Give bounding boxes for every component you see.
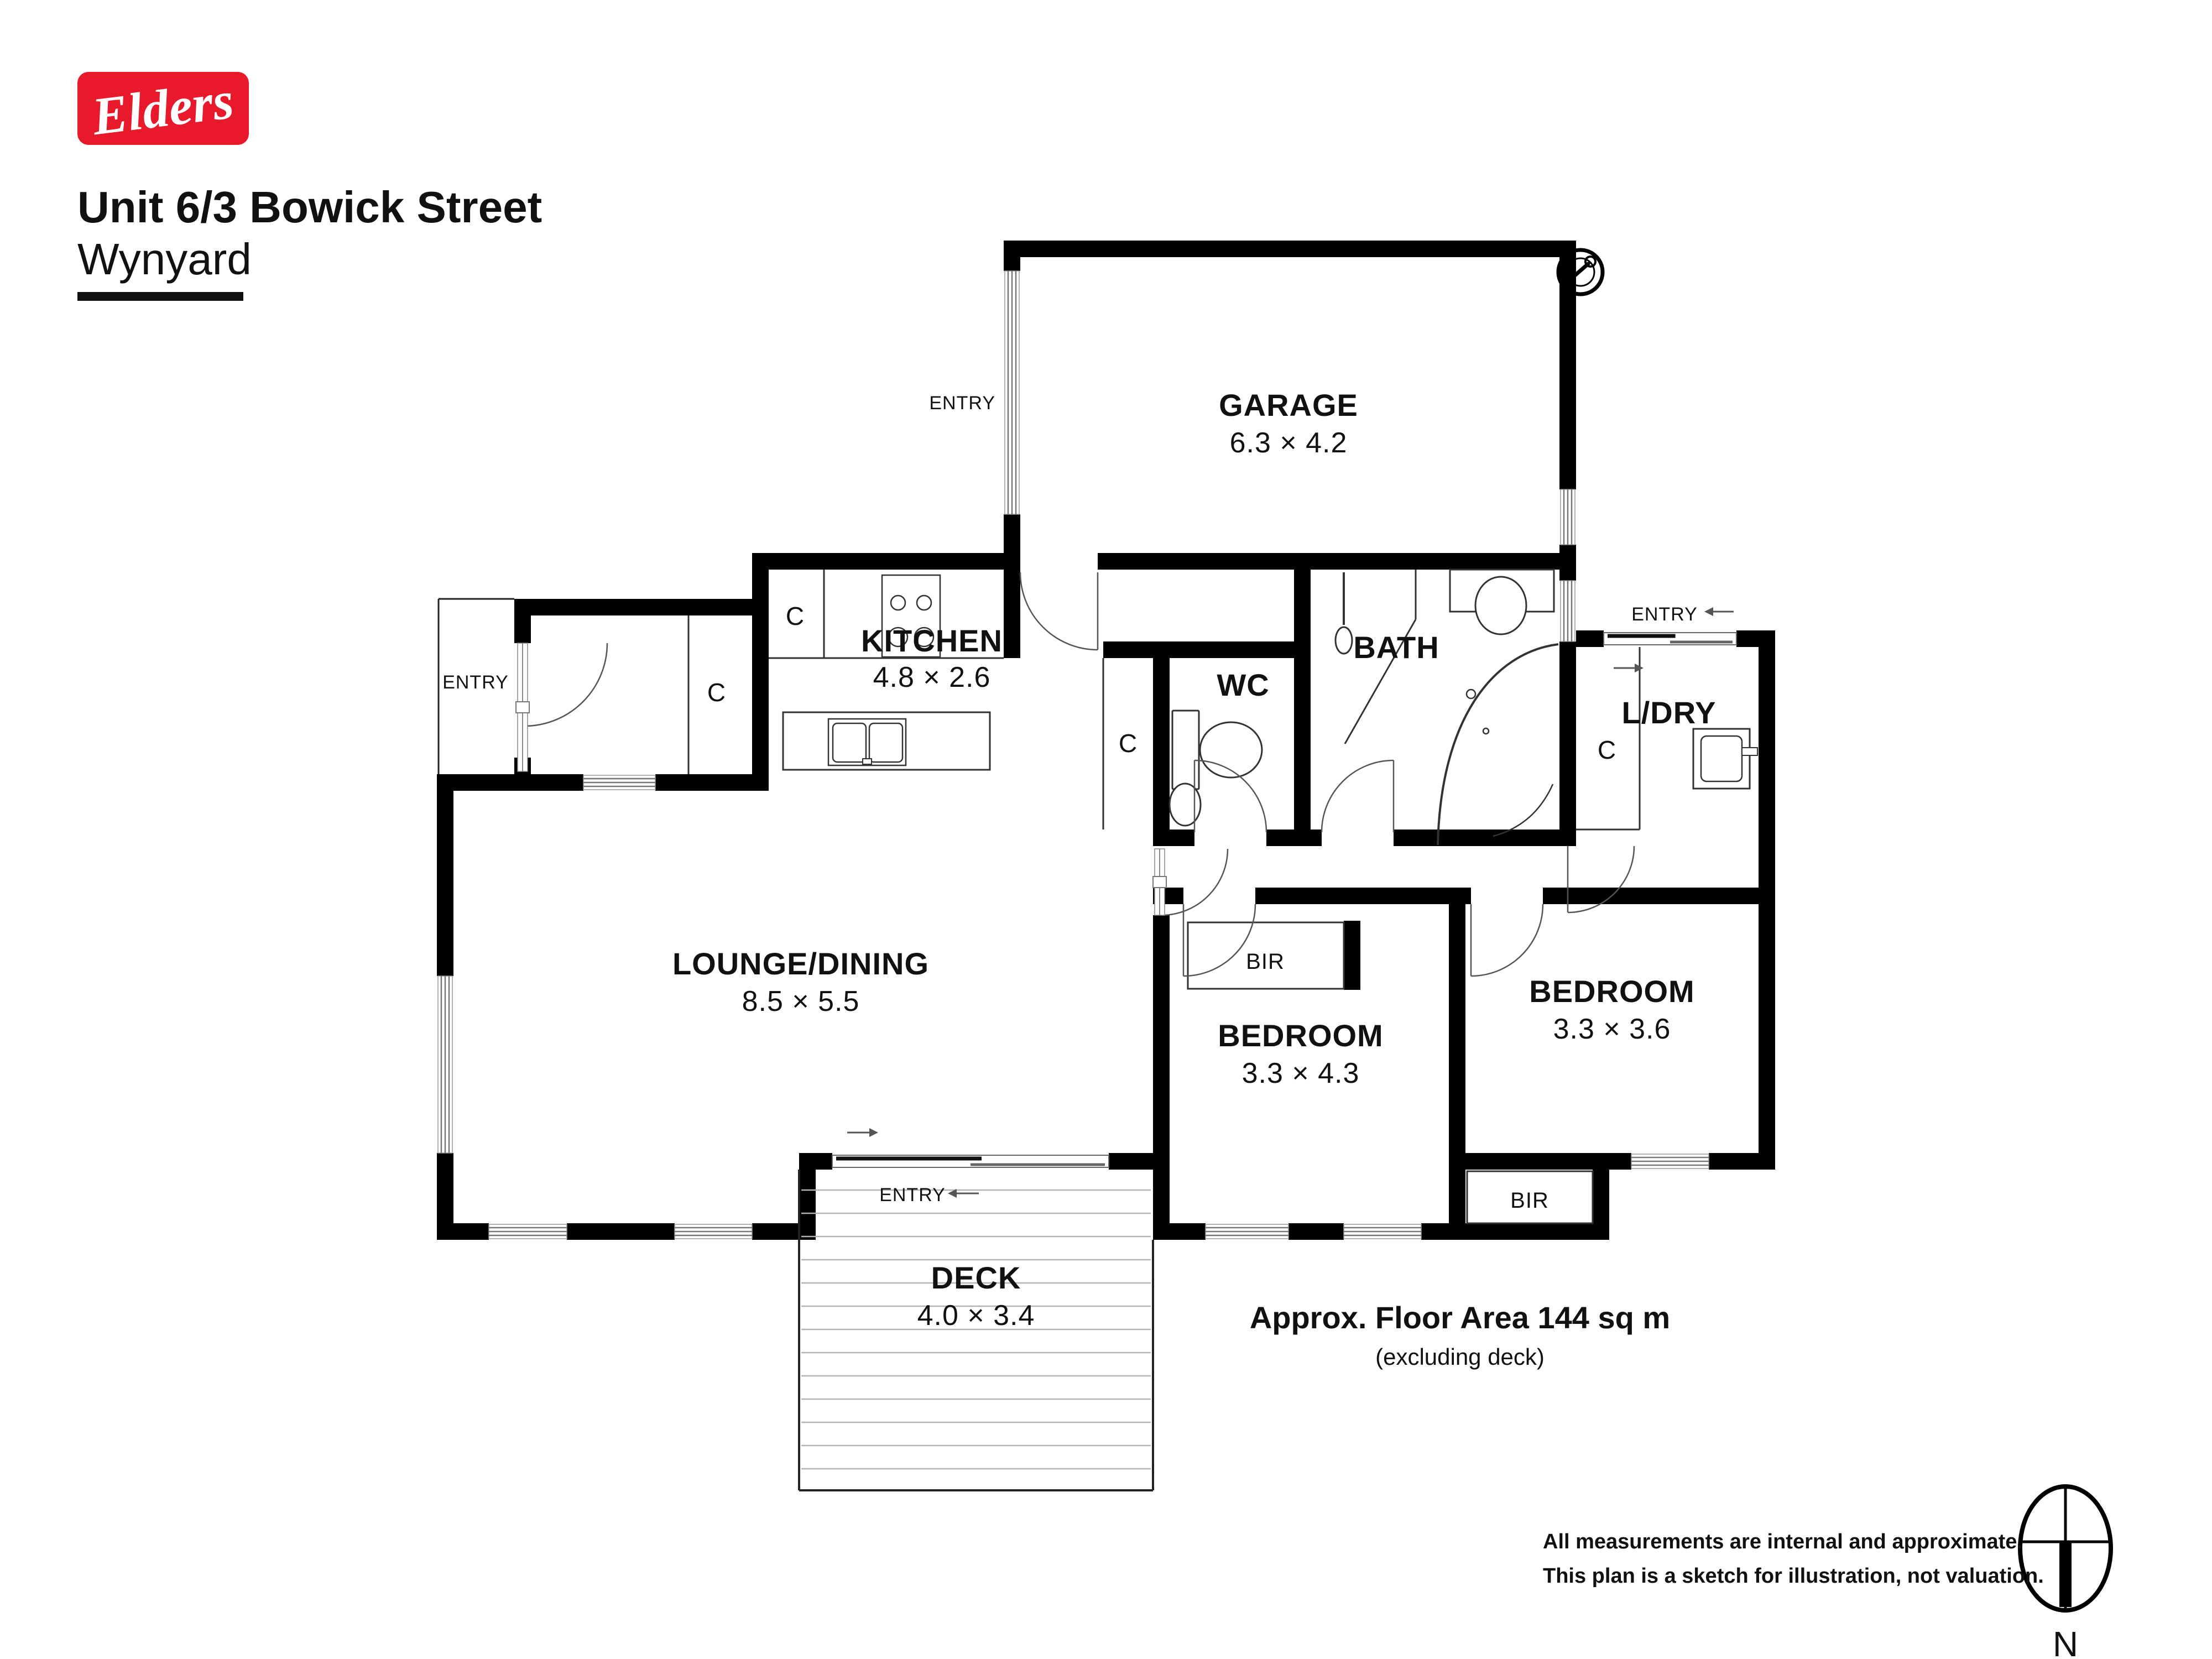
fixture <box>1701 736 1742 781</box>
wall <box>437 774 583 791</box>
door-swing <box>1020 572 1098 650</box>
floor-area-note: (excluding deck) <box>1375 1344 1545 1370</box>
wall <box>752 1223 816 1240</box>
wall <box>1004 241 1020 271</box>
wall <box>1421 1223 1609 1240</box>
wall <box>1759 630 1775 1170</box>
room-label-kitchen: KITCHEN <box>861 623 1003 658</box>
direction-arrow-head <box>869 1128 878 1137</box>
address-line1: Unit 6/3 Bowick Street <box>77 182 542 232</box>
header: Elders Unit 6/3 Bowick Street Wynyard <box>77 70 542 301</box>
fixture <box>1742 748 1757 755</box>
bir-label-bedroom1: BIR <box>1246 950 1285 974</box>
floor-area-text: Approx. Floor Area 144 sq m <box>1250 1300 1670 1335</box>
title-underline <box>77 292 243 301</box>
bir-label-bedroom2: BIR <box>1510 1188 1549 1213</box>
floorplan-canvas: Elders Unit 6/3 Bowick Street Wynyard GA… <box>0 0 2212 1659</box>
fixture <box>1483 728 1489 734</box>
closet-label-wc: C <box>1119 729 1138 758</box>
wall <box>1004 241 1576 257</box>
room-dims-bedroom1: 3.3 × 4.3 <box>1242 1057 1360 1089</box>
fixture <box>1200 722 1262 778</box>
fixture <box>1170 784 1201 826</box>
wall <box>1109 1153 1170 1170</box>
wall <box>1465 1153 1631 1170</box>
door-swing <box>1471 904 1543 976</box>
room-label-bedroom1: BEDROOM <box>1218 1018 1383 1053</box>
closet-label-entry: C <box>707 678 726 707</box>
room-dims-kitchen: 4.8 × 2.6 <box>873 661 991 693</box>
entry-label-porch: ENTRY <box>442 672 509 693</box>
disclaimer-line1: All measurements are internal and approx… <box>1543 1530 2023 1553</box>
wall <box>1543 888 1775 904</box>
wall <box>1449 904 1465 1240</box>
wall <box>1394 830 1559 846</box>
room-label-bedroom2: BEDROOM <box>1529 974 1694 1009</box>
door-swing <box>524 643 607 726</box>
walls <box>437 241 1775 1240</box>
closet-label-kitchen: C <box>786 602 805 630</box>
wall <box>1344 921 1360 990</box>
room-dims-deck: 4.0 × 3.4 <box>917 1300 1035 1332</box>
wall <box>1576 630 1604 647</box>
wall <box>752 553 1020 570</box>
wall <box>1098 553 1576 570</box>
fixture <box>869 723 902 762</box>
wall <box>437 1223 489 1240</box>
wall <box>514 599 769 615</box>
room-label-garage: GARAGE <box>1219 388 1358 422</box>
wall <box>1153 915 1170 1240</box>
wall <box>1170 1223 1206 1240</box>
door-pivot <box>1153 877 1166 888</box>
door-swing <box>1161 849 1228 915</box>
wall <box>1103 641 1311 658</box>
floorplan-page: Elders Unit 6/3 Bowick Street Wynyard GA… <box>0 0 2212 1659</box>
entry-label-laundry: ENTRY <box>1631 604 1698 625</box>
room-label-lounge: LOUNGE/DINING <box>672 946 929 981</box>
fixture <box>917 596 931 610</box>
room-label-laundry: L/DRY <box>1622 695 1717 730</box>
wall <box>1559 570 1576 581</box>
wall <box>514 599 531 643</box>
compass-icon <box>2020 1486 2111 1610</box>
fixture <box>891 596 905 610</box>
compass-north-label: N <box>2053 1624 2078 1659</box>
fixture <box>833 723 866 762</box>
wall <box>1004 570 1020 658</box>
room-dims-garage: 6.3 × 4.2 <box>1230 427 1348 459</box>
wall <box>752 553 769 791</box>
wall <box>655 774 769 791</box>
door-pivot <box>516 702 529 713</box>
fixture <box>1467 690 1475 698</box>
wall <box>1266 830 1322 846</box>
wall <box>437 774 453 976</box>
wall <box>1153 658 1170 846</box>
entry-label-garage: ENTRY <box>929 393 995 414</box>
direction-arrow-head <box>1704 607 1713 616</box>
fixture <box>1335 627 1352 654</box>
wall <box>1709 1153 1775 1170</box>
room-label-wc: WC <box>1217 667 1269 702</box>
wall <box>567 1223 675 1240</box>
address-line2: Wynyard <box>77 234 252 284</box>
room-label-deck: DECK <box>931 1260 1021 1295</box>
wall <box>1255 888 1471 904</box>
room-dims-bedroom2: 3.3 × 3.6 <box>1553 1013 1671 1045</box>
entry-label-deck: ENTRY <box>879 1185 946 1206</box>
closet-label-laundry: C <box>1598 735 1616 764</box>
bath-curve <box>1438 644 1558 845</box>
wall <box>1559 641 1576 846</box>
fixture <box>1475 577 1526 634</box>
room-dims-lounge: 8.5 × 5.5 <box>742 985 860 1018</box>
wall <box>1288 1223 1344 1240</box>
door-swing <box>1322 760 1394 832</box>
wall <box>1294 570 1311 846</box>
disclaimer-line2: This plan is a sketch for illustration, … <box>1543 1564 2044 1588</box>
wall <box>1593 1170 1609 1223</box>
bath-curve <box>1493 784 1553 836</box>
wall <box>1153 830 1194 846</box>
room-label-bath: BATH <box>1353 630 1439 665</box>
fixture <box>863 759 872 764</box>
